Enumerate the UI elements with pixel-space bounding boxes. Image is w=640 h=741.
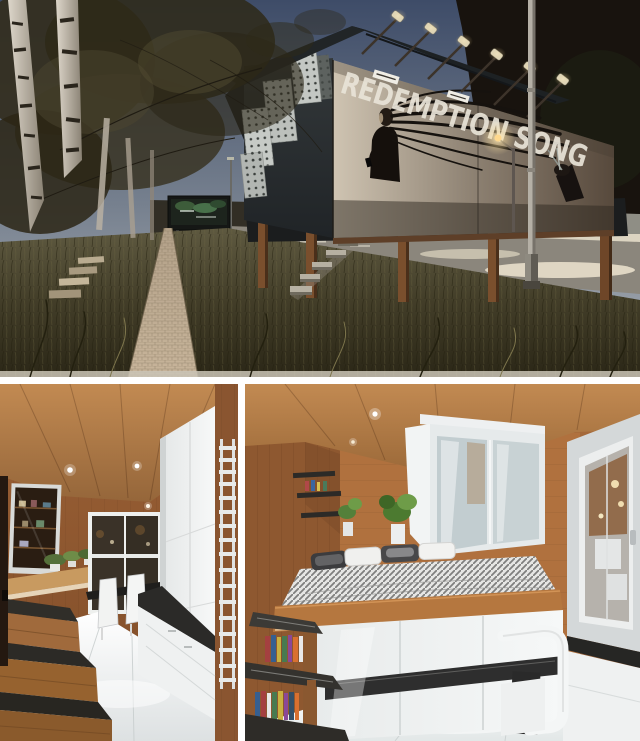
- photo-collage: REDEMPTION SONG: [0, 0, 640, 741]
- towel-radiator: [215, 384, 238, 741]
- desk: [563, 636, 640, 741]
- door-edge: [0, 476, 8, 666]
- window-right: [567, 414, 640, 652]
- window-handle: [630, 530, 636, 545]
- photo-interior-kitchen: [0, 384, 238, 741]
- hanging-mirror-cabinet: [405, 414, 545, 556]
- photo-exterior-billboard-house: REDEMPTION SONG: [0, 0, 640, 377]
- photo-interior-bedroom: [245, 384, 640, 741]
